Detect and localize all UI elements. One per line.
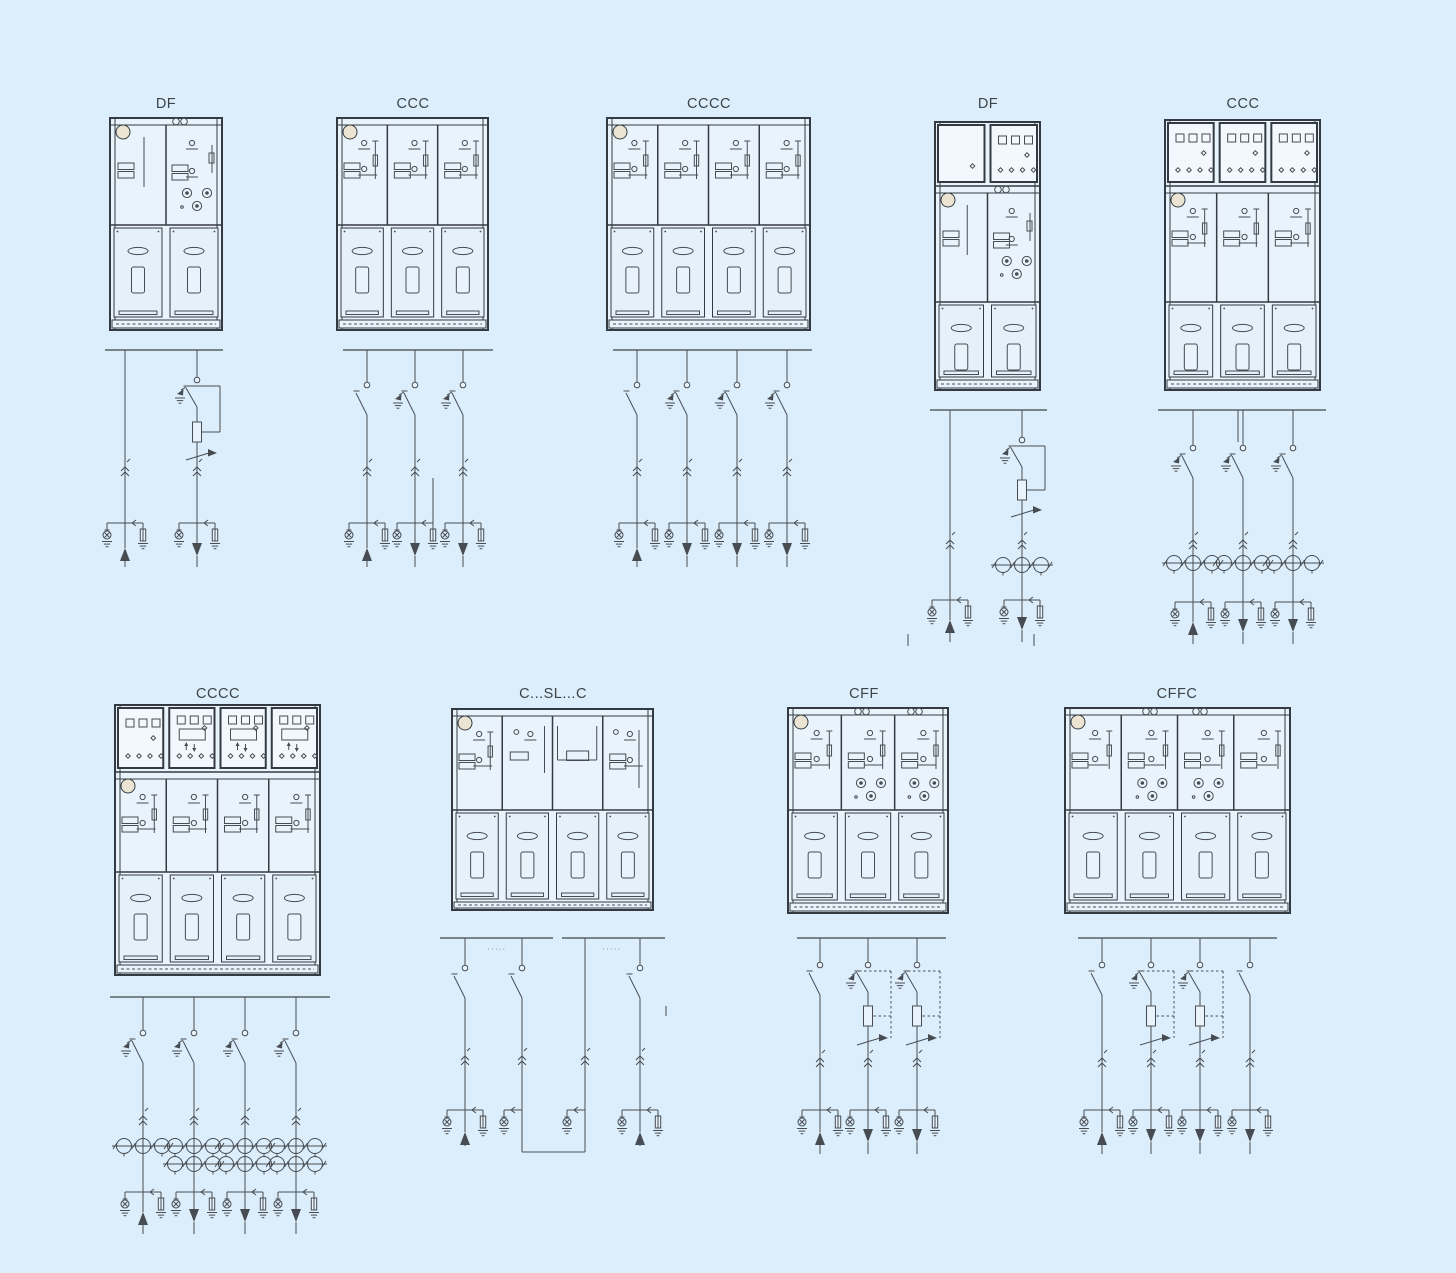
single-line-diagram-ccc-2 [1158, 410, 1326, 644]
pressure-gauge-knob [941, 193, 955, 207]
feeder-3 [214, 997, 276, 1234]
outgoing-arrow [863, 1129, 873, 1154]
load-break-switch [1089, 962, 1105, 995]
outgoing-arrow [1238, 619, 1248, 644]
load-break-switch [627, 965, 643, 998]
switchgear-catalog-drawing: ·········· [0, 0, 1456, 1273]
unit-label-cccc-2: CCCC [196, 686, 240, 702]
single-line-diagram-c-sl-c: ·········· [440, 938, 666, 1152]
bus-label: ····· [602, 946, 621, 953]
unit-label-cffc: CFFC [1157, 686, 1198, 702]
outgoing-arrow [1017, 617, 1027, 642]
outgoing-arrow [189, 1209, 199, 1234]
fuse [1147, 1006, 1156, 1026]
incoming-arrow [815, 1132, 825, 1154]
earthed-load-break-switch [665, 382, 690, 415]
unit-label-cff: CFF [849, 686, 879, 702]
earth-switch [1189, 1034, 1220, 1045]
unit-cccc-2 [110, 705, 330, 1234]
feeder-4 [1227, 938, 1273, 1154]
earth-switch [1140, 1034, 1171, 1045]
trip-linkage [1191, 971, 1223, 1038]
fuse [864, 1006, 873, 1026]
trip-linkage [908, 971, 940, 1038]
outgoing-arrow [410, 543, 420, 567]
incoming-arrow [138, 1212, 148, 1234]
trip-linkage [1142, 971, 1174, 1038]
pressure-gauge-knob [794, 715, 808, 729]
outgoing-arrow [240, 1209, 250, 1234]
outgoing-arrow [782, 543, 792, 567]
feeder-1 [442, 938, 488, 1146]
switch-fuse-combination [1000, 437, 1025, 467]
earthed-load-break-switch [121, 1030, 146, 1063]
earth-switch [186, 449, 217, 460]
fuse [913, 1006, 922, 1026]
feeder-1 [102, 350, 148, 567]
incoming-arrow [120, 548, 130, 567]
outgoing-arrow [682, 543, 692, 567]
unit-df-2 [908, 122, 1053, 646]
switch-fuse-combination [1129, 962, 1154, 992]
feeder-2 [392, 350, 438, 567]
pressure-gauge-knob [116, 125, 130, 139]
feeder-1 [797, 938, 843, 1154]
feeder-1 [344, 350, 390, 567]
load-break-switch [807, 962, 823, 995]
cabinet-front-cccc-2 [115, 705, 320, 975]
feeder-2 [845, 938, 891, 1154]
unit-cffc [1065, 708, 1290, 1154]
outgoing-arrow [912, 1129, 922, 1154]
feeder-4 [265, 997, 327, 1234]
outgoing-arrow [1245, 1129, 1255, 1154]
outgoing-arrow [732, 543, 742, 567]
load-break-switch [509, 965, 525, 998]
switch-fuse-combination [1178, 962, 1203, 992]
pressure-gauge-knob [613, 125, 627, 139]
earthed-load-break-switch [441, 382, 466, 415]
unit-ccc-1 [337, 118, 493, 567]
feeder-1 [614, 350, 660, 567]
unit-cccc-1 [607, 118, 812, 567]
outgoing-arrow [1288, 619, 1298, 644]
unit-label-ccc-2: CCC [1227, 96, 1260, 112]
incoming-arrow [635, 1132, 645, 1146]
cabinet-front-cccc-1 [607, 118, 810, 330]
unit-cff [788, 708, 948, 1154]
earthed-load-break-switch [1171, 445, 1196, 478]
pressure-gauge-knob [1071, 715, 1085, 729]
feeder-2 [664, 350, 710, 567]
cabinet-front-cff [788, 708, 948, 913]
incoming-arrow [362, 548, 372, 567]
pressure-gauge-knob [458, 716, 472, 730]
single-line-diagram-ccc-1 [343, 350, 493, 567]
feeder-3 [1262, 410, 1324, 644]
feeder-3 [440, 350, 486, 567]
bus-label: ····· [487, 946, 506, 953]
feeder-2 [163, 997, 225, 1234]
load-break-switch [452, 965, 468, 998]
unit-label-df-2: DF [978, 96, 998, 112]
earth-switch [1011, 506, 1042, 517]
fuse [1018, 480, 1027, 500]
feeder-1 [927, 410, 973, 642]
single-line-diagram-df-1 [102, 350, 223, 567]
feeder-2 [499, 938, 527, 1152]
earth-switch [857, 1034, 888, 1045]
feeder-3 [714, 350, 760, 567]
single-line-diagram-cffc [1078, 938, 1277, 1154]
fuse [1196, 1006, 1205, 1026]
pressure-gauge-knob [1171, 193, 1185, 207]
door-row [1169, 305, 1316, 377]
feeder-3 [562, 938, 590, 1152]
cable-termination-junction [499, 1107, 522, 1134]
outgoing-arrow [1195, 1129, 1205, 1154]
earthed-load-break-switch [172, 1030, 197, 1063]
earthed-load-break-switch [223, 1030, 248, 1063]
feeder-1 [112, 997, 174, 1234]
feeder-3 [894, 938, 940, 1154]
cabinet-front-ccc-1 [337, 118, 488, 330]
single-line-diagram-df-2 [908, 410, 1053, 646]
earthed-load-break-switch [393, 382, 418, 415]
feeder-2 [991, 410, 1053, 642]
incoming-arrow [460, 1132, 470, 1146]
outgoing-arrow [192, 543, 202, 567]
unit-label-df-1: DF [156, 96, 176, 112]
switch-fuse-combination [846, 962, 871, 992]
cabinet-front-df-1 [110, 118, 222, 330]
load-break-switch [354, 382, 370, 415]
single-line-diagram-cccc-1 [613, 350, 812, 567]
incoming-arrow [1188, 622, 1198, 644]
feeder-2 [1128, 938, 1174, 1154]
bus-label-group: ····· [487, 946, 506, 953]
feeder-4 [617, 938, 663, 1146]
cabinet-front-df-2 [935, 122, 1040, 390]
feeder-1 [1079, 938, 1125, 1154]
fuse [193, 422, 202, 442]
cabinet-front-ccc-2 [1165, 120, 1320, 390]
pressure-gauge-knob [343, 125, 357, 139]
load-break-switch [624, 382, 640, 415]
switch-fuse-combination [175, 377, 200, 407]
cabinet-front-c-sl-c [452, 709, 653, 910]
door-row [792, 813, 944, 900]
feeder-3 [1177, 938, 1223, 1154]
earthed-load-break-switch [1271, 445, 1296, 478]
unit-label-c-sl-c: C...SL...C [519, 686, 587, 702]
load-break-switch [1237, 962, 1253, 995]
single-line-diagram-cff [797, 938, 946, 1154]
cabinet-front-cffc [1065, 708, 1290, 913]
earthed-load-break-switch [715, 382, 740, 415]
outgoing-arrow [291, 1209, 301, 1234]
switch-fuse-combination [895, 962, 920, 992]
outgoing-arrow [458, 543, 468, 567]
incoming-arrow [632, 548, 642, 567]
incoming-arrow [1097, 1132, 1107, 1154]
feeder-1 [1162, 410, 1224, 644]
earthed-load-break-switch [274, 1030, 299, 1063]
pressure-gauge-knob [121, 779, 135, 793]
unit-label-cccc-1: CCCC [687, 96, 731, 112]
switchgear-catalog-page: ·········· DF CCC CCCC DF CCC CCCC C...S… [0, 0, 1456, 1273]
feeder-2 [174, 350, 220, 567]
unit-df-1 [102, 118, 223, 567]
feeder-4 [764, 350, 810, 567]
incoming-arrow [945, 620, 955, 642]
earth-switch [906, 1034, 937, 1045]
unit-ccc-2 [1158, 120, 1326, 644]
trip-linkage [859, 971, 891, 1038]
unit-label-ccc-1: CCC [397, 96, 430, 112]
outgoing-arrow [1146, 1129, 1156, 1154]
earthed-load-break-switch [765, 382, 790, 415]
unit-c-sl-c: ·········· [440, 709, 666, 1152]
door-row [341, 228, 484, 317]
feeder-2 [1212, 410, 1274, 644]
cable-termination-junction [562, 1107, 585, 1134]
earthed-load-break-switch [1221, 445, 1246, 478]
lv-compartment-row [1165, 123, 1320, 186]
single-line-diagram-cccc-2 [110, 997, 330, 1234]
bus-label-group: ····· [602, 946, 621, 953]
